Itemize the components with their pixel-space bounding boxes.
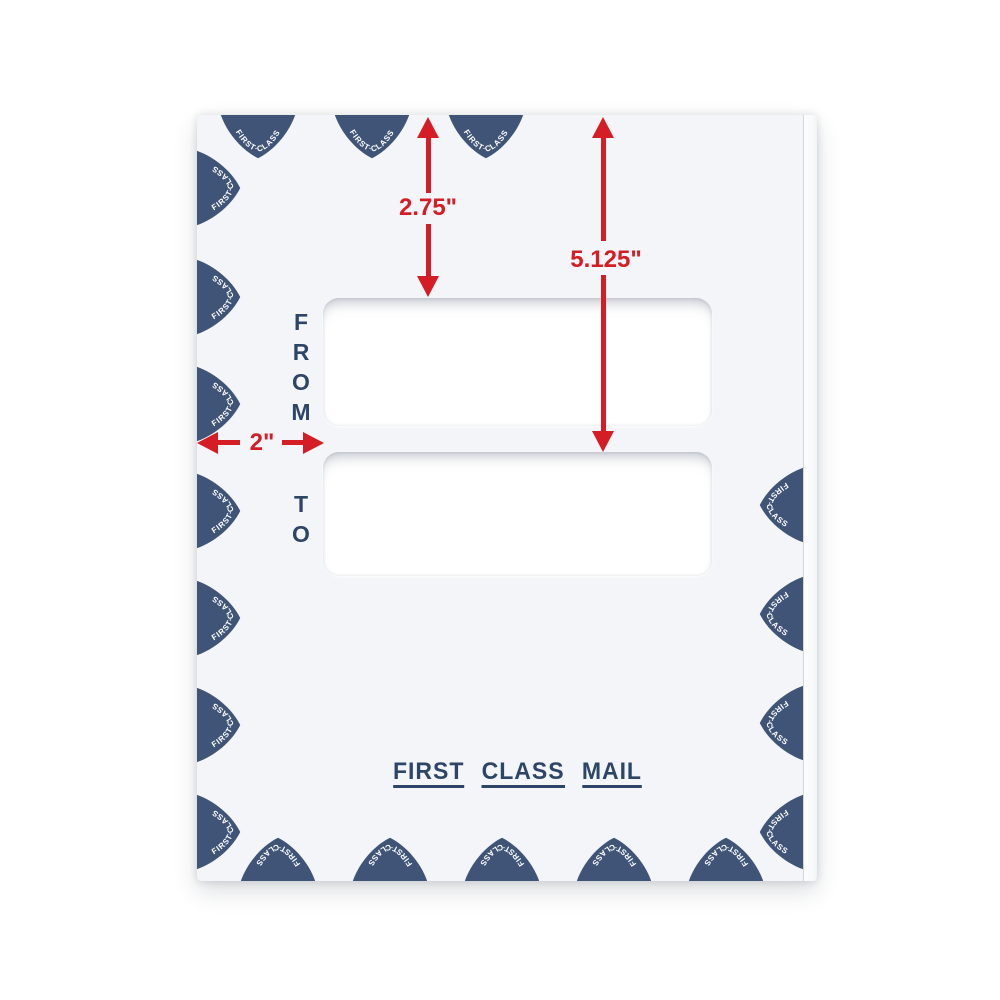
to-address-window	[323, 452, 712, 576]
to-label: TO	[286, 491, 316, 551]
from-label: FROM	[286, 309, 316, 429]
from-address-window	[323, 298, 712, 426]
arrow-shaft	[426, 224, 431, 277]
first-class-stamp-icon: FIRST·CLASS	[197, 687, 241, 763]
arrowhead-down-icon	[592, 431, 614, 452]
first-class-stamp-icon: FIRST·CLASS	[759, 467, 803, 543]
first-class-stamp-icon: FIRST·CLASS	[240, 837, 316, 881]
first-class-stamp-icon: FIRST·CLASS	[688, 837, 764, 881]
first-class-stamp-icon: FIRST·CLASS	[464, 837, 540, 881]
first-class-stamp-icon: FIRST·CLASS	[759, 685, 803, 761]
arrow-shaft	[601, 275, 606, 432]
first-class-mail-envelope: FIRST·CLASS FIRST·CLASS FIRST·CLASS FIRS…	[197, 115, 817, 881]
first-class-stamp-icon: FIRST·CLASS	[576, 837, 652, 881]
product-photo: FIRST·CLASS FIRST·CLASS FIRST·CLASS FIRS…	[0, 0, 1000, 1000]
arrowhead-down-icon	[417, 276, 439, 297]
first-class-stamp-icon: FIRST·CLASS	[334, 115, 410, 159]
arrowhead-up-icon	[417, 117, 439, 138]
first-class-stamp-icon: FIRST·CLASS	[759, 794, 803, 870]
first-class-stamp-icon: FIRST·CLASS	[197, 580, 241, 656]
arrowhead-right-icon	[303, 432, 324, 454]
dimension-label: 5.125"	[526, 248, 686, 272]
arrowhead-left-icon	[197, 432, 218, 454]
first-class-stamp-icon: FIRST·CLASS	[197, 473, 241, 549]
footer-word: FIRST	[393, 759, 464, 788]
arrow-shaft	[426, 137, 431, 193]
first-class-stamp-icon: FIRST·CLASS	[352, 837, 428, 881]
first-class-stamp-icon: FIRST·CLASS	[197, 259, 241, 335]
first-class-stamp-icon: FIRST·CLASS	[448, 115, 524, 159]
arrowhead-up-icon	[592, 117, 614, 138]
arrow-shaft	[601, 137, 606, 241]
first-class-stamp-icon: FIRST·CLASS	[759, 576, 803, 652]
envelope-right-edge	[803, 115, 817, 881]
first-class-stamp-icon: FIRST·CLASS	[197, 794, 241, 870]
footer-word: MAIL	[582, 759, 642, 788]
first-class-stamp-icon: FIRST·CLASS	[197, 150, 241, 226]
dimension-label: 2.75"	[348, 196, 508, 220]
arrow-shaft	[282, 440, 304, 445]
footer-word: CLASS	[482, 759, 565, 788]
first-class-mail-label: FIRST CLASS MAIL	[331, 759, 704, 788]
